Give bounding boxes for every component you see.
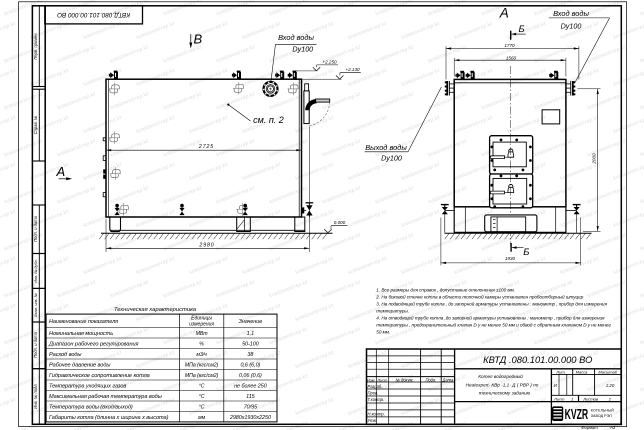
svg-text:МПа (кгс/см2): МПа (кгс/см2)	[185, 363, 219, 369]
svg-text:2980х1930х2250: 2980х1930х2250	[229, 415, 271, 421]
svg-text:Heatexpert- КВр -1,1- Д ( РВР: Heatexpert- КВр -1,1- Д ( РВР ) по	[466, 382, 539, 387]
svg-text:техническому заданию: техническому заданию	[479, 390, 531, 395]
svg-text:Dy100: Dy100	[561, 21, 582, 30]
svg-text:115: 115	[246, 394, 256, 400]
svg-text:Перв. примен.: Перв. примен.	[33, 32, 38, 59]
svg-text:70/95: 70/95	[244, 405, 258, 411]
svg-text:КВТД .080.101.00.000 ВО: КВТД .080.101.00.000 ВО	[483, 355, 593, 365]
svg-text:температуры , предохранительны: температуры , предохранительный клапан D…	[376, 321, 611, 327]
svg-text:Лист: Лист	[553, 397, 565, 402]
svg-text:см. п. 2: см. п. 2	[253, 115, 284, 125]
svg-text:МПа (кгс/см2): МПа (кгс/см2)	[185, 373, 219, 379]
svg-text:0,06 (0,6): 0,06 (0,6)	[239, 373, 262, 379]
svg-text:4. На отводящей трубе котла ,: 4. На отводящей трубе котла ,до запорной…	[376, 314, 605, 320]
svg-text:В: В	[193, 31, 202, 46]
svg-text:Габариты котла (длинна х ширин: Габариты котла (длинна х ширина х высота…	[49, 415, 169, 421]
svg-text:МВт: МВт	[196, 331, 209, 337]
svg-text:Взам. инв. №: Взам. инв. №	[34, 293, 38, 316]
svg-text:+2.130: +2.130	[345, 67, 360, 72]
svg-text:+2.250: +2.250	[322, 59, 337, 64]
svg-text:1930: 1930	[505, 256, 516, 261]
svg-text:Т.контр.: Т.контр.	[368, 397, 385, 402]
svg-text:0.000: 0.000	[334, 220, 346, 225]
svg-text:Инв. № дубл.: Инв. № дубл.	[34, 259, 38, 282]
svg-text:Б: Б	[519, 24, 525, 35]
svg-text:1: 1	[571, 397, 573, 402]
svg-text:Температура уходящих газов: Температура уходящих газов	[49, 384, 126, 390]
svg-text:Изм.: Изм.	[367, 377, 375, 382]
svg-text:°С: °С	[199, 384, 205, 390]
svg-text:Рабочее давление воды: Рабочее давление воды	[49, 363, 110, 369]
svg-text:Значение: Значение	[239, 319, 263, 325]
svg-text:А: А	[55, 164, 65, 179]
svg-text:Вход воды: Вход воды	[553, 9, 589, 18]
svg-text:Формат: Формат	[581, 425, 598, 430]
svg-text:Справ. №: Справ. №	[33, 115, 38, 134]
svg-text:Наименование показателя: Наименование показателя	[49, 319, 118, 325]
svg-text:ЗАВОД РЭП: ЗАВОД РЭП	[591, 414, 612, 418]
svg-text:Dy100: Dy100	[381, 153, 402, 162]
svg-text:50-100: 50-100	[242, 342, 259, 348]
svg-text:KVZR: KVZR	[565, 407, 589, 423]
svg-text:не более 250: не более 250	[234, 384, 267, 390]
svg-text:Котел водогрейный: Котел водогрейный	[478, 373, 523, 379]
svg-text:Разраб.: Разраб.	[368, 384, 383, 389]
svg-text:А3: А3	[609, 425, 616, 430]
svg-text:1770: 1770	[504, 43, 515, 48]
svg-text:0,6 (6,0): 0,6 (6,0)	[240, 363, 260, 369]
svg-text:Н.контр.: Н.контр.	[368, 412, 385, 417]
svg-text:Гидравлическое сопротивление к: Гидравлическое сопротивление котла	[49, 373, 150, 379]
svg-text:Пров.: Пров.	[368, 391, 379, 396]
svg-text:КОТЕЛЬНЫЙ: КОТЕЛЬНЫЙ	[591, 409, 614, 413]
svg-text:Подп. и дата: Подп. и дата	[33, 331, 38, 357]
svg-text:Дата: Дата	[441, 377, 454, 382]
svg-text:Масштаб: Масштаб	[598, 369, 617, 374]
svg-text:2000: 2000	[591, 153, 596, 165]
svg-text:А: А	[499, 5, 509, 20]
svg-text:Масса: Масса	[576, 369, 589, 374]
svg-text:38: 38	[247, 352, 253, 358]
svg-text:мм: мм	[198, 415, 206, 421]
svg-text:Лит.: Лит.	[555, 369, 565, 374]
svg-text:Подп.: Подп.	[425, 377, 436, 382]
svg-text:КВТД.080.101.00.000 ВО: КВТД.080.101.00.000 ВО	[57, 11, 130, 18]
svg-text:м3/ч: м3/ч	[196, 352, 207, 358]
svg-text:°С: °С	[199, 405, 205, 411]
svg-text:Максимальная рабочая температу: Максимальная рабочая температура воды	[49, 394, 162, 400]
svg-text:3. На подводящей трубе котла: 3. На подводящей трубе котла , до запорн…	[376, 300, 607, 306]
svg-text:Вход воды: Вход воды	[278, 33, 314, 42]
svg-text:1:20: 1:20	[606, 383, 615, 388]
svg-text:°С: °С	[199, 394, 205, 400]
svg-text:Температура воды (вход/выход): Температура воды (вход/выход)	[49, 405, 133, 411]
svg-text:1560: 1560	[506, 55, 517, 60]
svg-text:№ докум.: № докум.	[396, 377, 414, 382]
svg-text:Выход воды: Выход воды	[365, 143, 407, 152]
svg-text:Dy100: Dy100	[292, 45, 313, 54]
svg-text:Инв. № подл.: Инв. № подл.	[33, 383, 38, 408]
svg-text:измерения: измерения	[189, 322, 214, 328]
svg-text:Лист: Лист	[376, 377, 388, 382]
svg-text:2. На боковой стенке котла в: 2. На боковой стенке котла в области топ…	[375, 293, 583, 299]
svg-text:50 мм.: 50 мм.	[376, 329, 390, 334]
svg-text:температуры.: температуры.	[376, 308, 409, 313]
svg-text:2980: 2980	[198, 242, 214, 248]
svg-text:2725: 2725	[198, 144, 214, 150]
svg-text:Утв.: Утв.	[368, 418, 377, 423]
svg-text:Расход воды: Расход воды	[49, 352, 81, 358]
svg-text:1. Все размеры для справок ,: 1. Все размеры для справок , допустимые …	[376, 287, 515, 292]
svg-text:Подп. и дата: Подп. и дата	[33, 215, 38, 241]
svg-text:Номинальная мощность: Номинальная мощность	[49, 331, 113, 337]
svg-text:Диапазон рабочего регулировани: Диапазон рабочего регулирования	[48, 342, 139, 348]
svg-text:Б: Б	[523, 247, 529, 258]
svg-text:1,1: 1,1	[247, 331, 254, 337]
svg-text:%: %	[199, 342, 204, 348]
svg-text:Листов: Листов	[582, 397, 598, 402]
svg-text:Техническая характеристика: Техническая характеристика	[114, 307, 197, 313]
